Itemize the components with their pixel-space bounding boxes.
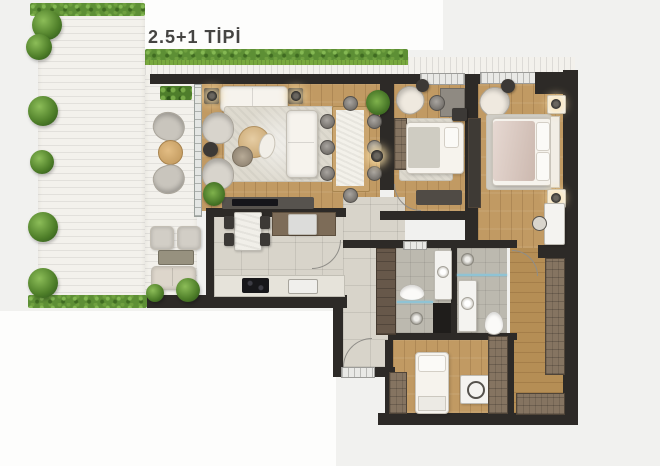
kitchen-counter: [214, 275, 345, 297]
corridor-wardrobe-bottom: [516, 393, 565, 415]
shower-glass: [457, 274, 507, 276]
table-lamp: [291, 91, 301, 101]
hall-cabinet: [376, 248, 396, 335]
vanity-stool: [532, 216, 547, 231]
sofa-cushion-line: [252, 88, 253, 108]
bed-blanket: [408, 127, 440, 168]
floor-plan: 2.5+1 TİPİ: [0, 0, 660, 466]
toilet: [484, 311, 504, 335]
wardrobe: [389, 372, 407, 414]
loveseat-cushion-line: [172, 268, 173, 286]
terrace-armchair: [150, 226, 174, 250]
kitchen-chair: [224, 216, 234, 229]
sofa-chaise: [286, 110, 318, 178]
desk-chair: [429, 95, 445, 111]
wardrobe: [488, 336, 508, 414]
bathroom1-sink: [437, 266, 449, 278]
table-lamp: [551, 193, 561, 203]
bathroom2-sink: [461, 297, 474, 310]
table-lamp: [207, 91, 217, 101]
shower-head: [461, 253, 474, 266]
nightstand: [452, 108, 467, 121]
tree: [28, 212, 58, 242]
dining-chair: [320, 166, 335, 181]
shower-head: [410, 312, 423, 325]
side-table-round: [416, 79, 429, 92]
kitchen-chair: [260, 233, 270, 246]
kitchen-chair: [224, 233, 234, 246]
wall-hall-left: [333, 290, 343, 377]
dining-chair: [320, 114, 335, 129]
tree: [26, 34, 52, 60]
dining-chair: [343, 96, 358, 111]
dining-tablecloth: [336, 110, 364, 186]
entrance-door: [341, 367, 375, 378]
toilet: [399, 284, 425, 301]
dining-chair: [320, 140, 335, 155]
potted-plant: [203, 182, 225, 206]
kitchen-island-table: [234, 212, 262, 251]
washer-door: [467, 381, 485, 399]
terrace-coffee-table: [158, 250, 194, 265]
potted-plant: [366, 90, 390, 115]
vanity-desk: [544, 203, 565, 245]
side-table-round: [203, 142, 218, 157]
wall-bath-top: [343, 240, 517, 248]
tree: [28, 268, 58, 298]
table-lamp: [551, 99, 561, 109]
dining-chair: [367, 166, 382, 181]
bathroom-cabinet: [433, 303, 451, 333]
bathroom1-door: [403, 241, 427, 250]
bed-pillow: [444, 127, 459, 148]
bed-footboard: [418, 396, 446, 411]
wall-right-exterior: [563, 70, 578, 425]
wall-child-bottom: [380, 211, 470, 220]
bed-pillow: [536, 152, 550, 181]
bed-blanket: [493, 121, 535, 181]
floor-lamp: [371, 150, 383, 162]
tv: [232, 199, 278, 206]
bed-pillow: [536, 122, 550, 151]
plan-title: 2.5+1 TİPİ: [148, 27, 242, 48]
terrace-armchair: [177, 226, 201, 250]
bush: [176, 278, 200, 302]
bush: [146, 284, 164, 302]
kitchen-sink: [288, 279, 318, 294]
shower-glass: [397, 301, 433, 303]
coffee-table-small: [232, 146, 253, 167]
grass-strip-middle: [145, 60, 408, 65]
headboard: [550, 116, 560, 188]
bed-pillow: [418, 355, 446, 372]
dining-chair: [343, 188, 358, 203]
corridor-wardrobe: [545, 258, 565, 375]
fridge: [288, 214, 317, 235]
cooktop: [242, 278, 269, 293]
sofa-cushion-line: [288, 142, 314, 143]
tree: [28, 96, 58, 126]
wall-kitchen-left: [206, 210, 214, 300]
wardrobe: [468, 118, 481, 208]
planter-box: [160, 86, 192, 100]
dining-chair: [367, 114, 382, 129]
terrace-sliding-door: [194, 84, 202, 217]
pouf: [158, 140, 183, 165]
tree: [30, 150, 54, 174]
side-table-round: [501, 79, 515, 93]
dresser: [416, 190, 462, 205]
armchair: [202, 112, 234, 144]
kitchen-chair: [260, 216, 270, 229]
background-lower-left: [0, 311, 336, 466]
terrace-deck: [38, 14, 145, 300]
